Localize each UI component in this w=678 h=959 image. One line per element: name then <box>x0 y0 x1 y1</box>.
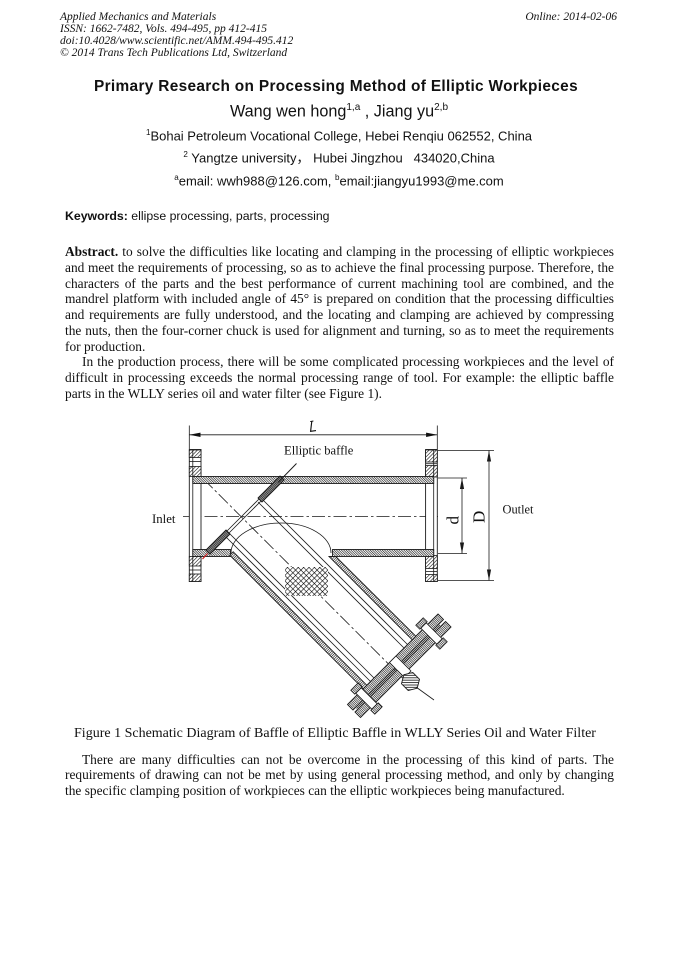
svg-text:d: d <box>444 516 463 525</box>
svg-text:Inlet: Inlet <box>152 512 176 526</box>
svg-text:Elliptic baffle: Elliptic baffle <box>284 444 354 458</box>
svg-text:D: D <box>470 511 489 523</box>
svg-text:Outlet: Outlet <box>503 503 535 517</box>
